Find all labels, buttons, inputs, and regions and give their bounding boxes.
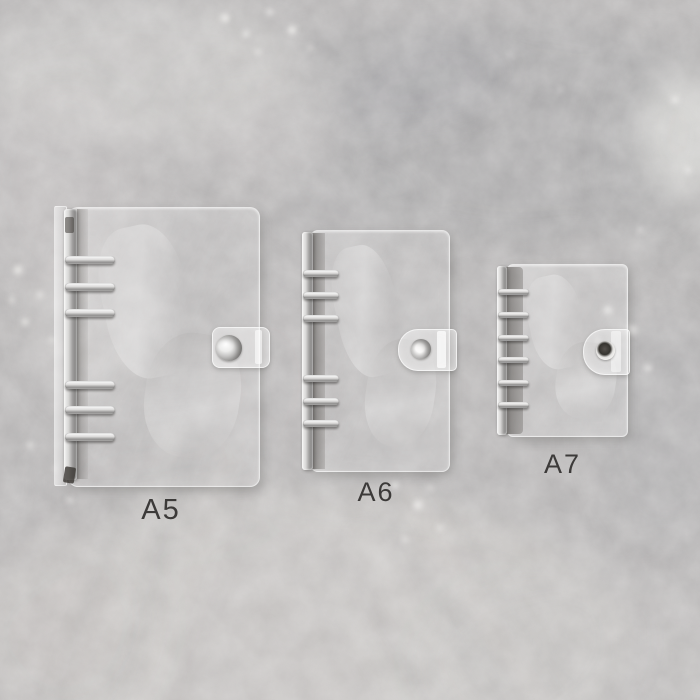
a6-snap-highlight bbox=[437, 331, 446, 368]
size-label-a5: A5 bbox=[62, 494, 260, 527]
a7-sheen bbox=[520, 271, 592, 374]
a6-snap-button bbox=[411, 339, 431, 359]
a6-snap-tab bbox=[398, 329, 457, 371]
binder-a5 bbox=[62, 203, 260, 487]
a5-snap-button bbox=[216, 335, 242, 361]
a7-spine-bar bbox=[497, 266, 507, 435]
size-label-a7: A7 bbox=[497, 449, 628, 480]
a6-sheen bbox=[323, 240, 411, 382]
a5-snap-tab bbox=[212, 327, 270, 368]
size-label-a6: A6 bbox=[302, 477, 450, 508]
binder-a7 bbox=[497, 264, 628, 437]
binder-a6 bbox=[302, 230, 450, 472]
a5-snap-highlight bbox=[255, 330, 262, 364]
a7-snap-button bbox=[596, 341, 615, 360]
a6-spine-bar bbox=[302, 232, 313, 470]
a7-snap-tab bbox=[583, 329, 630, 375]
a5-sheen bbox=[88, 217, 203, 384]
product-photo: A5 A6 A7 bbox=[0, 0, 700, 700]
a5-spine-bar bbox=[64, 209, 77, 480]
